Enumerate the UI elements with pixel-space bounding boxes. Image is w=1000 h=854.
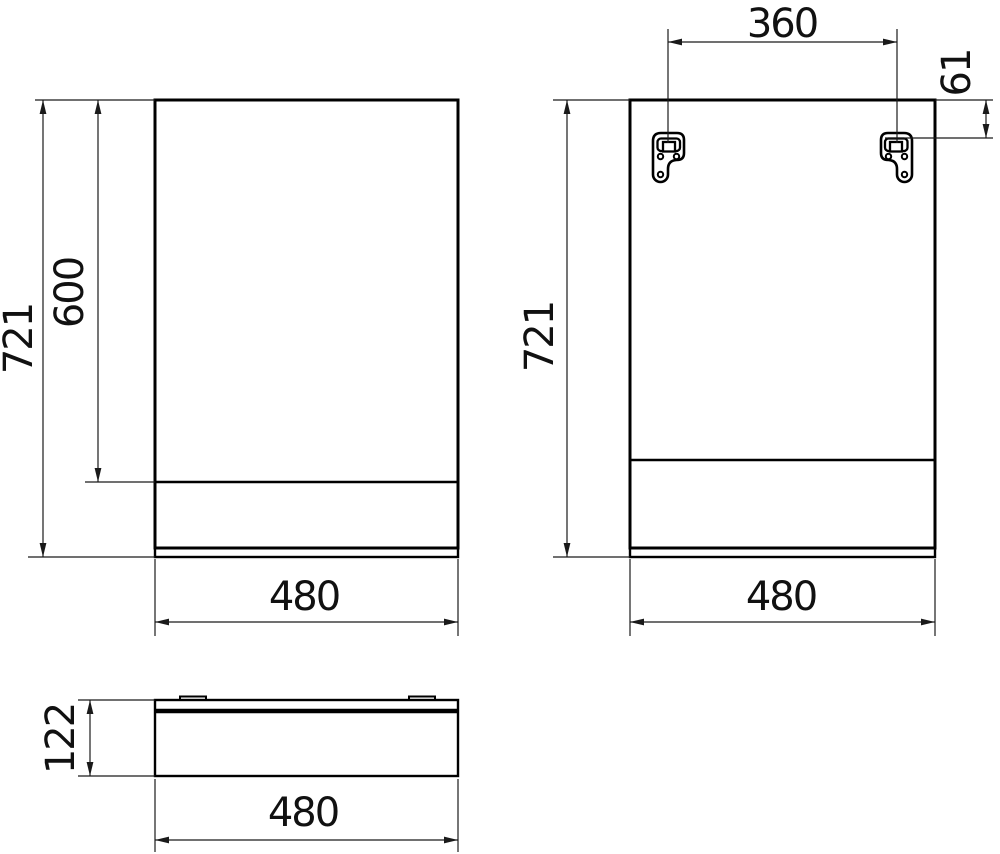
technical-drawing-page: 721 600 480 721 360 61 480 xyxy=(0,0,1000,854)
top-view xyxy=(155,697,458,777)
arrowhead-icon xyxy=(444,619,458,626)
cabinet-dimension-drawing: 721 600 480 721 360 61 480 xyxy=(0,0,1000,854)
arrowhead-icon xyxy=(95,100,102,114)
dim-label-top-width: 480 xyxy=(268,790,338,836)
arrowhead-icon xyxy=(564,100,571,114)
back-view-dimensions: 721 360 61 480 xyxy=(517,1,993,636)
back-body-outline xyxy=(630,100,935,548)
arrowhead-icon xyxy=(87,700,94,714)
dim-label-depth: 122 xyxy=(38,704,84,774)
arrowhead-icon xyxy=(95,468,102,482)
dim-label-back-total-height: 721 xyxy=(517,302,563,372)
arrowhead-icon xyxy=(983,124,990,138)
arrowhead-icon xyxy=(444,837,458,844)
arrowhead-icon xyxy=(40,100,47,114)
arrowhead-icon xyxy=(564,543,571,557)
arrowhead-icon xyxy=(87,762,94,776)
back-view xyxy=(630,100,935,557)
front-view xyxy=(155,100,458,557)
dim-label-back-width: 480 xyxy=(746,574,816,620)
arrowhead-icon xyxy=(921,619,935,626)
arrowhead-icon xyxy=(983,100,990,114)
arrowhead-icon xyxy=(155,619,169,626)
dim-label-front-door-height: 600 xyxy=(47,258,93,328)
dim-label-bracket-spacing: 360 xyxy=(747,1,817,47)
arrowhead-icon xyxy=(40,543,47,557)
dim-label-front-total-height: 721 xyxy=(0,304,42,374)
arrowhead-icon xyxy=(883,39,897,46)
arrowhead-icon xyxy=(668,39,682,46)
front-view-dimensions: 721 600 480 xyxy=(0,100,458,636)
dim-label-front-width: 480 xyxy=(269,574,339,620)
dim-label-bracket-offset: 61 xyxy=(934,50,980,97)
arrowhead-icon xyxy=(155,837,169,844)
arrowhead-icon xyxy=(630,619,644,626)
